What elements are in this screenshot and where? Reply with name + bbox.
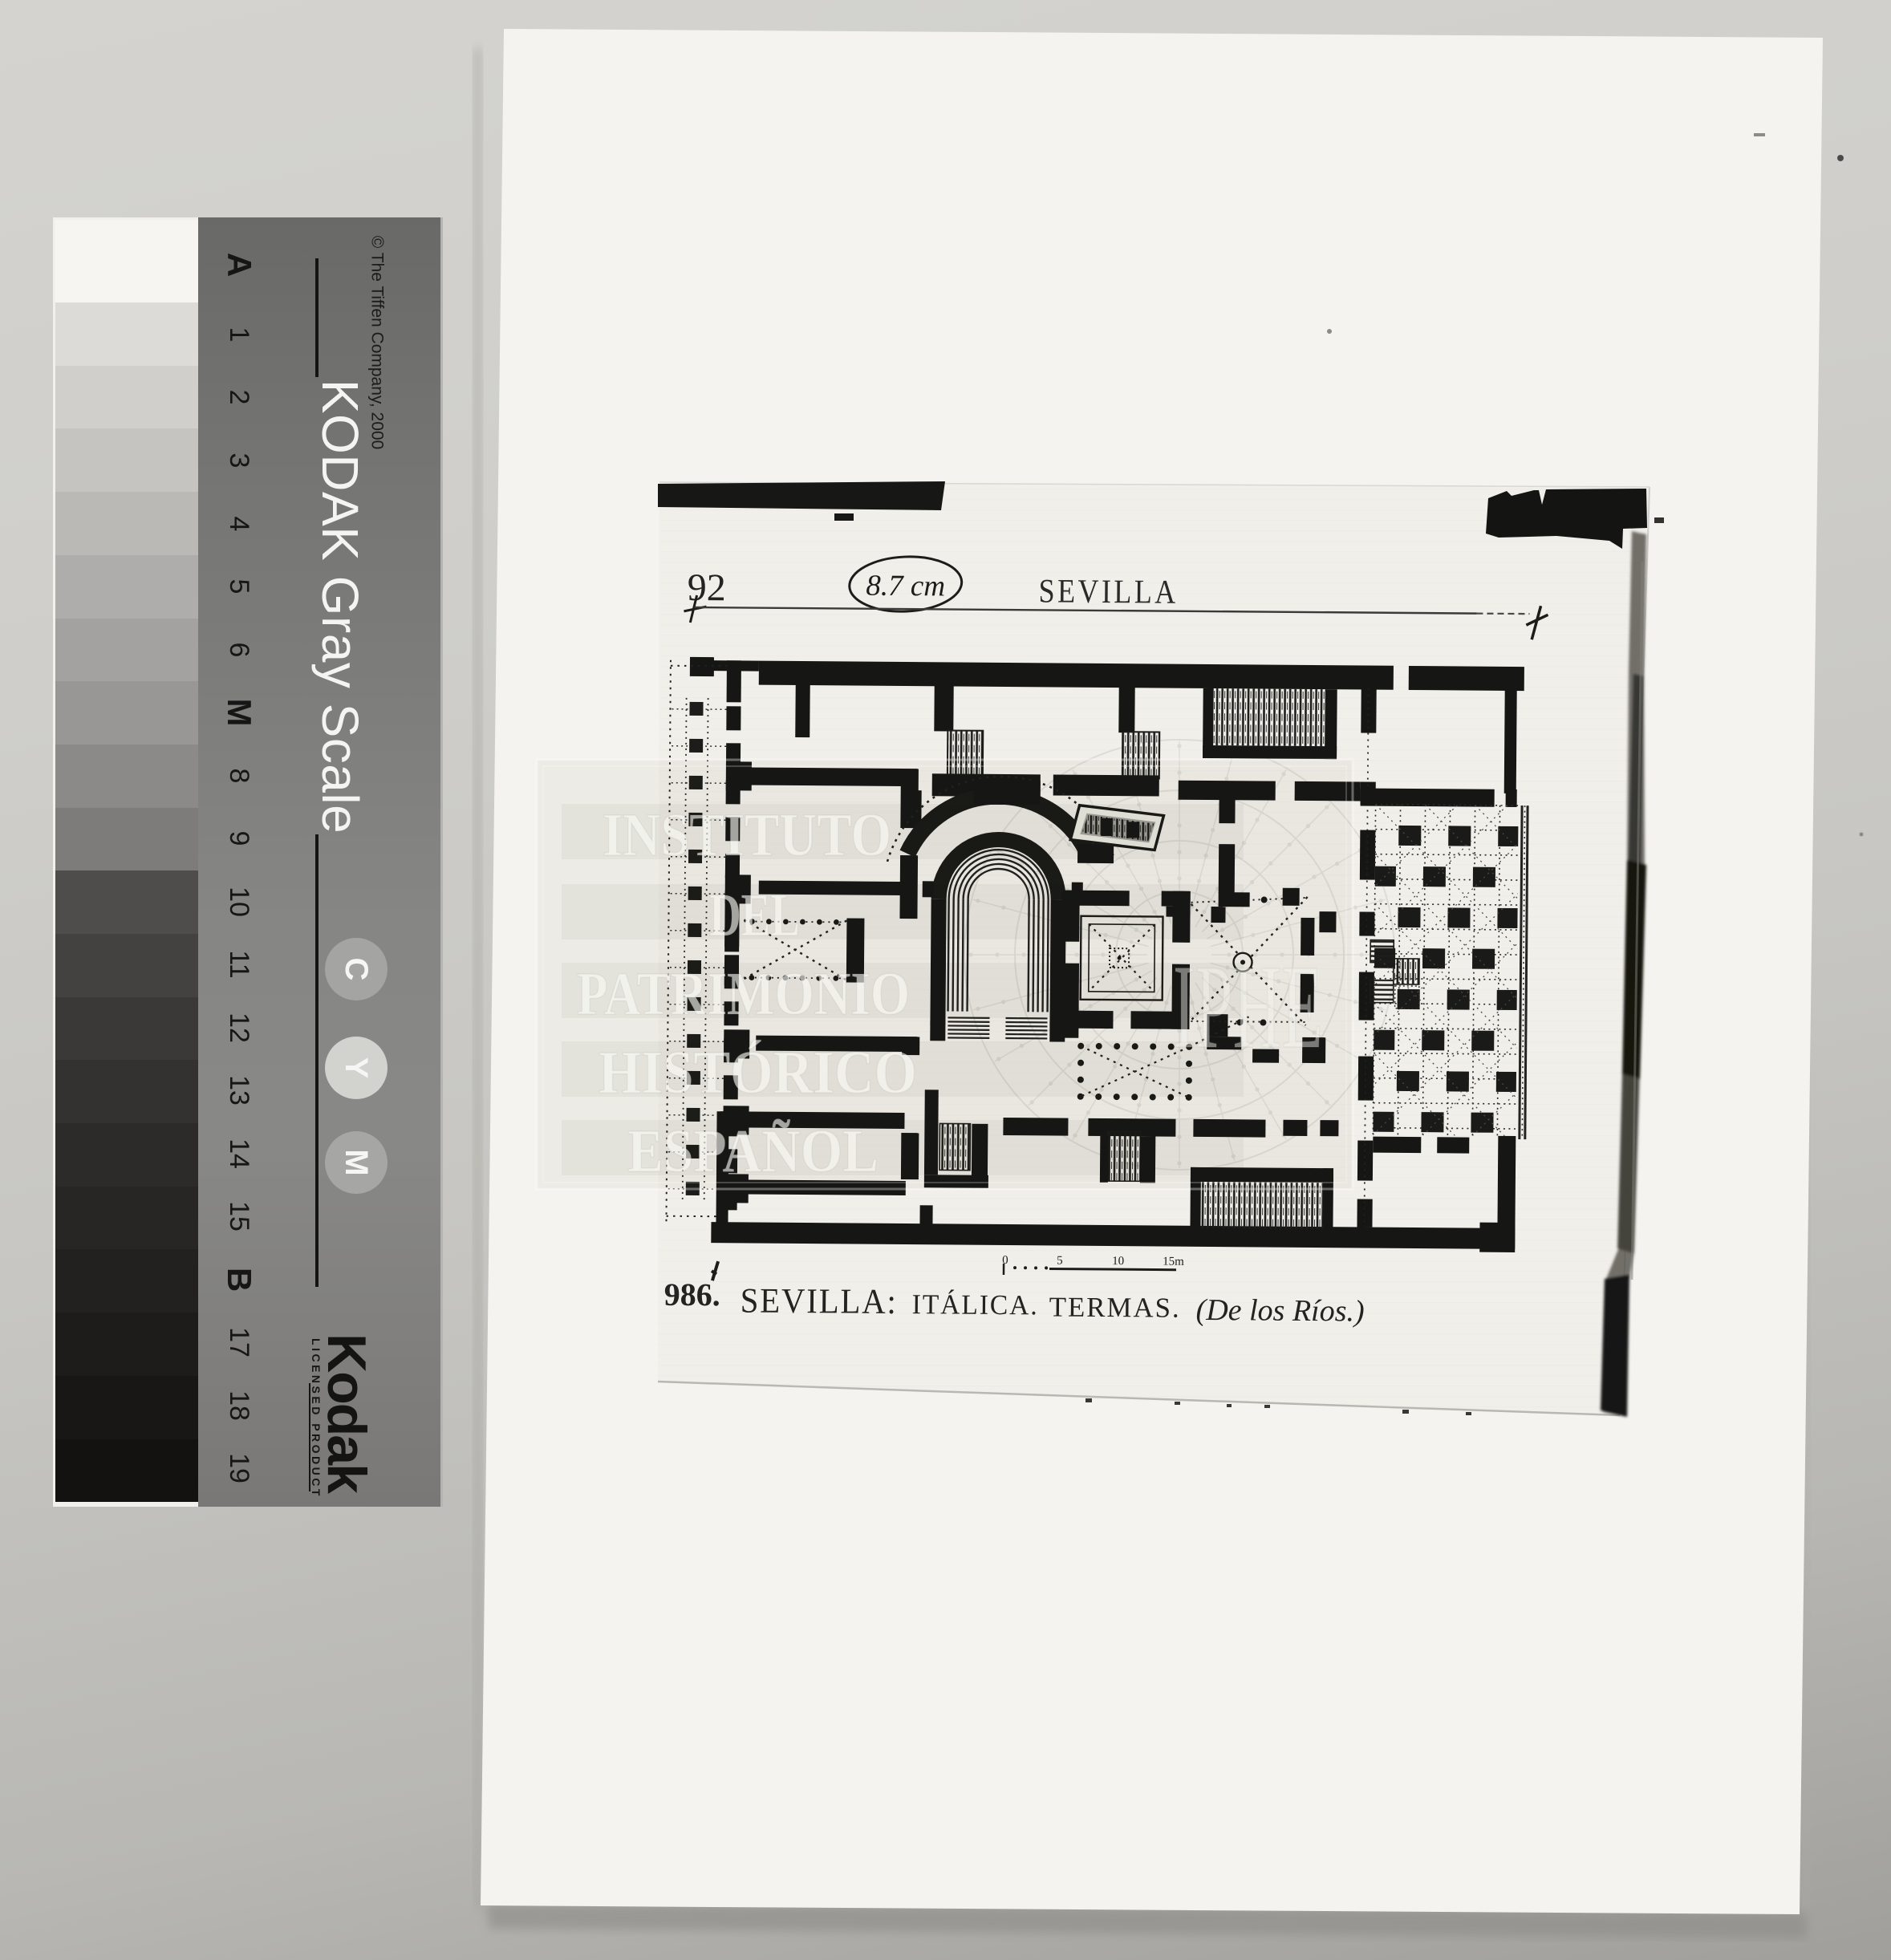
svg-text:INSTITUTO: INSTITUTO [603, 801, 891, 869]
svg-text:986.: 986. [664, 1276, 720, 1313]
svg-text:SEVILLA: SEVILLA [1038, 573, 1178, 611]
svg-text:DEL: DEL [709, 882, 800, 949]
svg-text:15m: 15m [1163, 1256, 1184, 1268]
svg-text:8.7 cm: 8.7 cm [866, 570, 945, 603]
svg-text:ITÁLICA.: ITÁLICA. [912, 1288, 1039, 1321]
svg-text:IPHE: IPHE [1173, 941, 1323, 1073]
svg-text:TERMAS.: TERMAS. [1049, 1291, 1181, 1323]
svg-text:92: 92 [687, 566, 725, 609]
svg-text:5: 5 [1057, 1255, 1063, 1268]
svg-text:HISTÓRICO: HISTÓRICO [599, 1039, 917, 1106]
svg-text:0: 0 [1002, 1254, 1008, 1267]
svg-text:10: 10 [1112, 1255, 1124, 1268]
svg-text:(De los Ríos.): (De los Ríos.) [1195, 1293, 1364, 1329]
svg-text:ESPAÑOL: ESPAÑOL [627, 1118, 879, 1185]
svg-text:SEVILLA:: SEVILLA: [741, 1280, 898, 1321]
svg-text:PATRIMONIO: PATRIMONIO [577, 960, 910, 1028]
